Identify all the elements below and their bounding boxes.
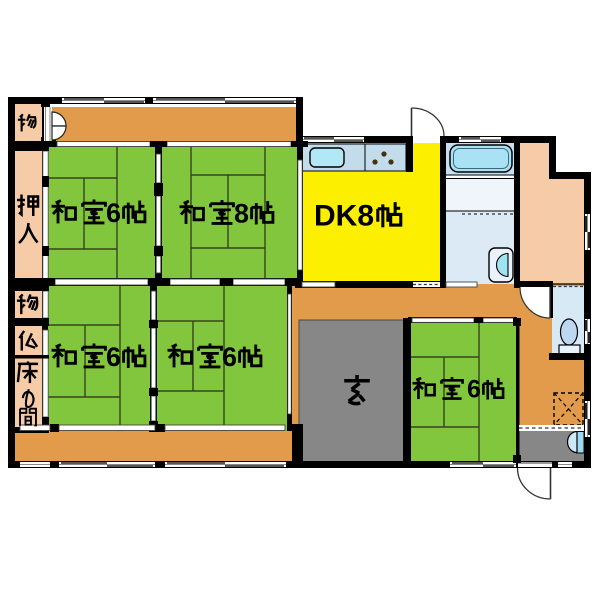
svg-text:6: 6 <box>222 342 237 372</box>
svg-text:6: 6 <box>106 198 121 228</box>
svg-text:8: 8 <box>234 199 249 229</box>
svg-text:DK8: DK8 <box>314 200 374 233</box>
svg-text:6: 6 <box>467 376 481 404</box>
svg-text:6: 6 <box>106 342 121 372</box>
